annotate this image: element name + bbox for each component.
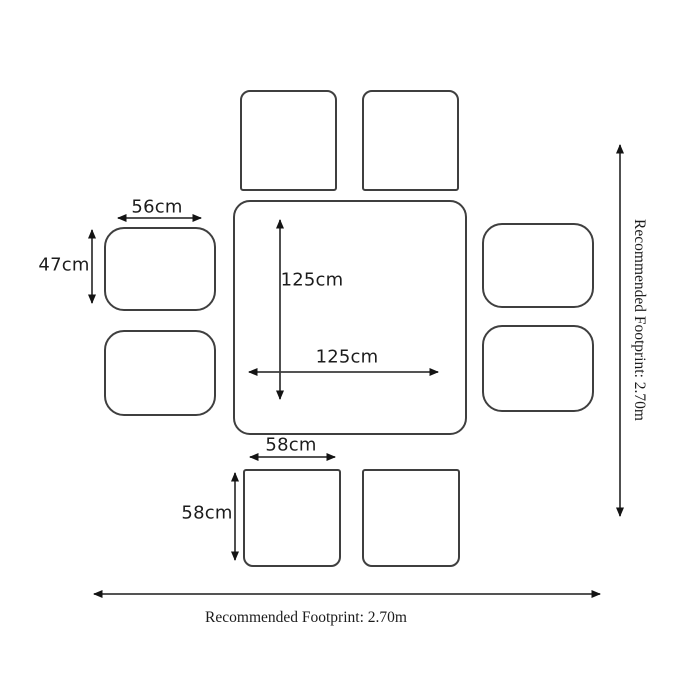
left-chair-1-outline <box>104 227 216 311</box>
right-chair-2-outline <box>482 325 594 412</box>
top-stool-2-outline <box>362 90 459 191</box>
left-chair-2-outline <box>104 330 216 416</box>
table-top-outline <box>233 200 467 435</box>
stool-width-label: 58cm <box>265 435 316 456</box>
top-stool-1-outline <box>240 90 337 191</box>
bottom-stool-1-outline <box>243 469 341 567</box>
bottom-stool-2-outline <box>362 469 460 567</box>
stool-depth-label: 58cm <box>181 503 232 524</box>
table-depth-label: 125cm <box>281 270 344 291</box>
table-width-label: 125cm <box>316 347 379 368</box>
footprint-bottom-label: Recommended Footprint: 2.70m <box>205 609 407 627</box>
furniture-dimensions-diagram: 56cm 47cm 125cm 125cm 58cm 58cm Recommen… <box>0 0 700 700</box>
chair-width-label: 56cm <box>131 197 182 218</box>
footprint-right-label: Recommended Footprint: 2.70m <box>630 219 648 421</box>
chair-depth-label: 47cm <box>38 255 89 276</box>
right-chair-1-outline <box>482 223 594 308</box>
